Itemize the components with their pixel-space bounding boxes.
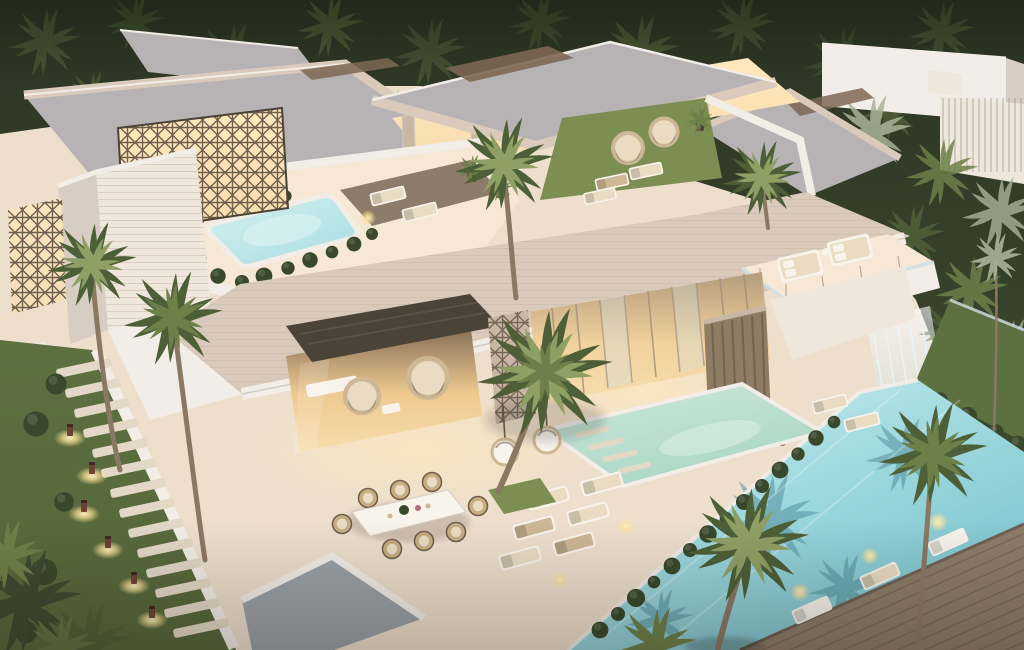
bottom-vignette <box>0 520 1024 650</box>
villa-aerial-render <box>0 0 1024 650</box>
cocoon-daybed <box>650 118 677 145</box>
louvered-facade <box>942 98 1022 172</box>
cocoon-daybed <box>613 133 643 163</box>
screenshot-canvas <box>0 0 1024 650</box>
